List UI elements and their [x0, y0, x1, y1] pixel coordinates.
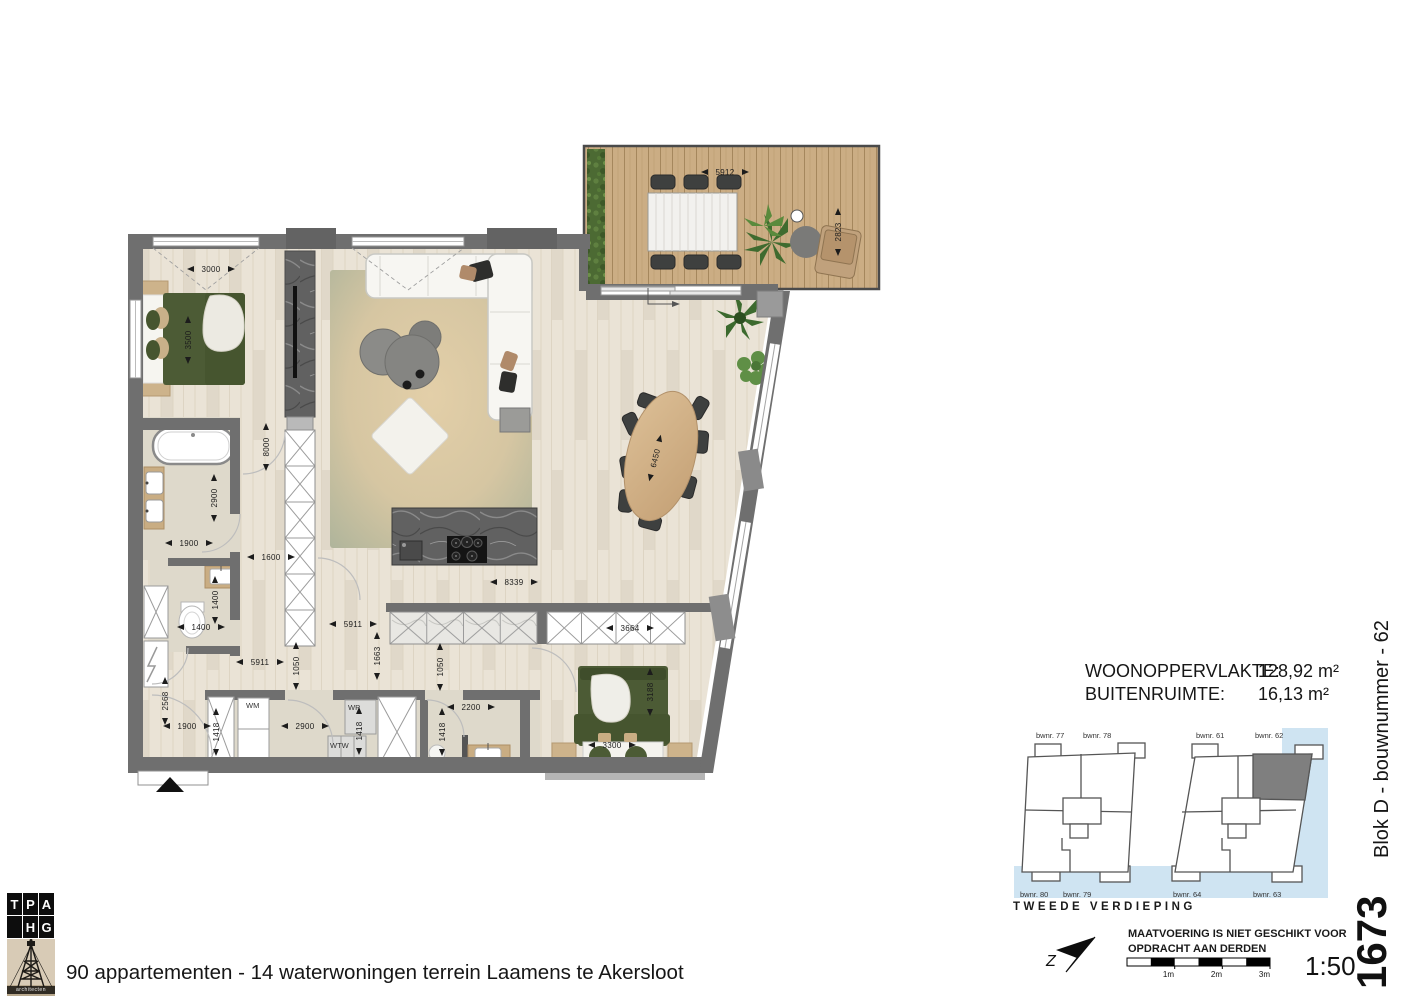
hall-wardrobe: [285, 430, 315, 646]
logo-letter-p: P: [23, 893, 38, 915]
label-wm: WM: [246, 701, 259, 710]
svg-text:2900: 2900: [210, 488, 219, 507]
label-wp: WP: [348, 703, 360, 712]
svg-text:5911: 5911: [251, 658, 270, 667]
svg-text:2823: 2823: [834, 222, 843, 241]
kitchen-tall-cabinets: [390, 612, 537, 644]
svg-text:1600: 1600: [262, 553, 281, 562]
scale-1m: 1m: [1163, 970, 1174, 979]
svg-text:3188: 3188: [646, 682, 655, 701]
bwnr-79: bwnr. 79: [1063, 890, 1091, 899]
overview-block-left: [1022, 743, 1145, 882]
logo-subtitle: architecten: [7, 986, 55, 994]
sheet-number: 1673: [1348, 903, 1394, 989]
floor-label: TWEEDE VERDIEPING: [1013, 901, 1196, 913]
bedroom2-wardrobe: [547, 612, 685, 644]
svg-text:5911: 5911: [344, 620, 363, 629]
kitchen-island: [392, 508, 537, 565]
svg-text:3500: 3500: [184, 330, 193, 349]
area-label-1: WOONOPPERVLAKTE:: [1085, 661, 1258, 684]
bwnr-77: bwnr. 77: [1036, 731, 1064, 740]
scale-bar: 1m 2m 3m: [1127, 958, 1270, 979]
logo-letter-a: A: [39, 893, 54, 915]
terrace-lamp: [791, 210, 803, 222]
logo-letter-t: T: [7, 893, 22, 915]
label-wtw: WTW: [330, 741, 350, 750]
svg-text:1400: 1400: [192, 623, 211, 632]
bwnr-62: bwnr. 62: [1255, 731, 1283, 740]
project-caption: 90 appartementen - 14 waterwoningen terr…: [66, 961, 684, 985]
svg-text:1050: 1050: [436, 657, 445, 676]
svg-text:3664: 3664: [621, 624, 640, 633]
logo-empty-cell: [7, 916, 22, 938]
logo-letter-g: G: [39, 916, 54, 938]
bwnr-80: bwnr. 80: [1020, 890, 1048, 899]
svg-text:1418: 1418: [212, 722, 221, 741]
svg-text:3000: 3000: [202, 265, 221, 274]
svg-text:1400: 1400: [211, 590, 220, 609]
overview-map: bwnr. 77 bwnr. 78 bwnr. 80 bwnr. 79 bwnr…: [1014, 728, 1328, 899]
floorplan-sheet: 5912 2823 3000 3500 8000 2900 1900 1600 …: [0, 0, 1414, 1000]
area-value-1: 128,92 m²: [1258, 661, 1339, 684]
scale-2m: 2m: [1211, 970, 1222, 979]
svg-text:1900: 1900: [178, 722, 197, 731]
chimney: [285, 251, 315, 430]
svg-text:8000: 8000: [262, 437, 271, 456]
svg-text:2900: 2900: [296, 722, 315, 731]
hedge: [587, 149, 605, 286]
svg-text:5912: 5912: [716, 168, 735, 177]
unit-label: Blok D - bouwnummer - 62: [1371, 626, 1398, 858]
sofa-pillow: [498, 371, 517, 393]
svg-text:8339: 8339: [505, 578, 524, 587]
area-label-2: BUITENRUIMTE:: [1085, 684, 1258, 707]
bwnr-64: bwnr. 64: [1173, 890, 1201, 899]
north-letter: Z: [1045, 953, 1057, 970]
sofa-side-table: [500, 408, 530, 432]
highlighted-unit: [1253, 754, 1312, 800]
terrace-dining-table: [648, 193, 737, 251]
svg-text:3300: 3300: [603, 741, 622, 750]
logo-tower-image: architecten: [7, 939, 55, 996]
area-value-2: 16,13 m²: [1258, 684, 1329, 707]
svg-text:1418: 1418: [438, 722, 447, 741]
entrance-door: [138, 771, 208, 792]
bathtub: [153, 428, 234, 464]
svg-text:1050: 1050: [292, 656, 301, 675]
svg-text:1663: 1663: [373, 646, 382, 665]
cooktop: [447, 536, 487, 563]
architect-logo: T P A H G architecten: [7, 893, 55, 996]
area-table: WOONOPPERVLAKTE:128,92 m² BUITENRUIMTE:1…: [1085, 661, 1347, 707]
bwnr-61: bwnr. 61: [1196, 731, 1224, 740]
svg-text:2568: 2568: [161, 691, 170, 710]
north-arrow-icon: Z: [1045, 937, 1095, 972]
scale-3m: 3m: [1259, 970, 1270, 979]
bathroom-sinks: [144, 467, 164, 529]
bwnr-63: bwnr. 63: [1253, 890, 1281, 899]
toilet: [179, 602, 205, 638]
floor-plan-drawing: 5912 2823 3000 3500 8000 2900 1900 1600 …: [0, 0, 1414, 1000]
svg-text:1900: 1900: [180, 539, 199, 548]
svg-text:2200: 2200: [462, 703, 481, 712]
bwnr-78: bwnr. 78: [1083, 731, 1111, 740]
logo-letter-h: H: [23, 916, 38, 938]
disclaimer-line1: MAATVOERING IS NIET GESCHIKT VOOR: [1128, 927, 1347, 942]
svg-text:1418: 1418: [355, 721, 364, 740]
